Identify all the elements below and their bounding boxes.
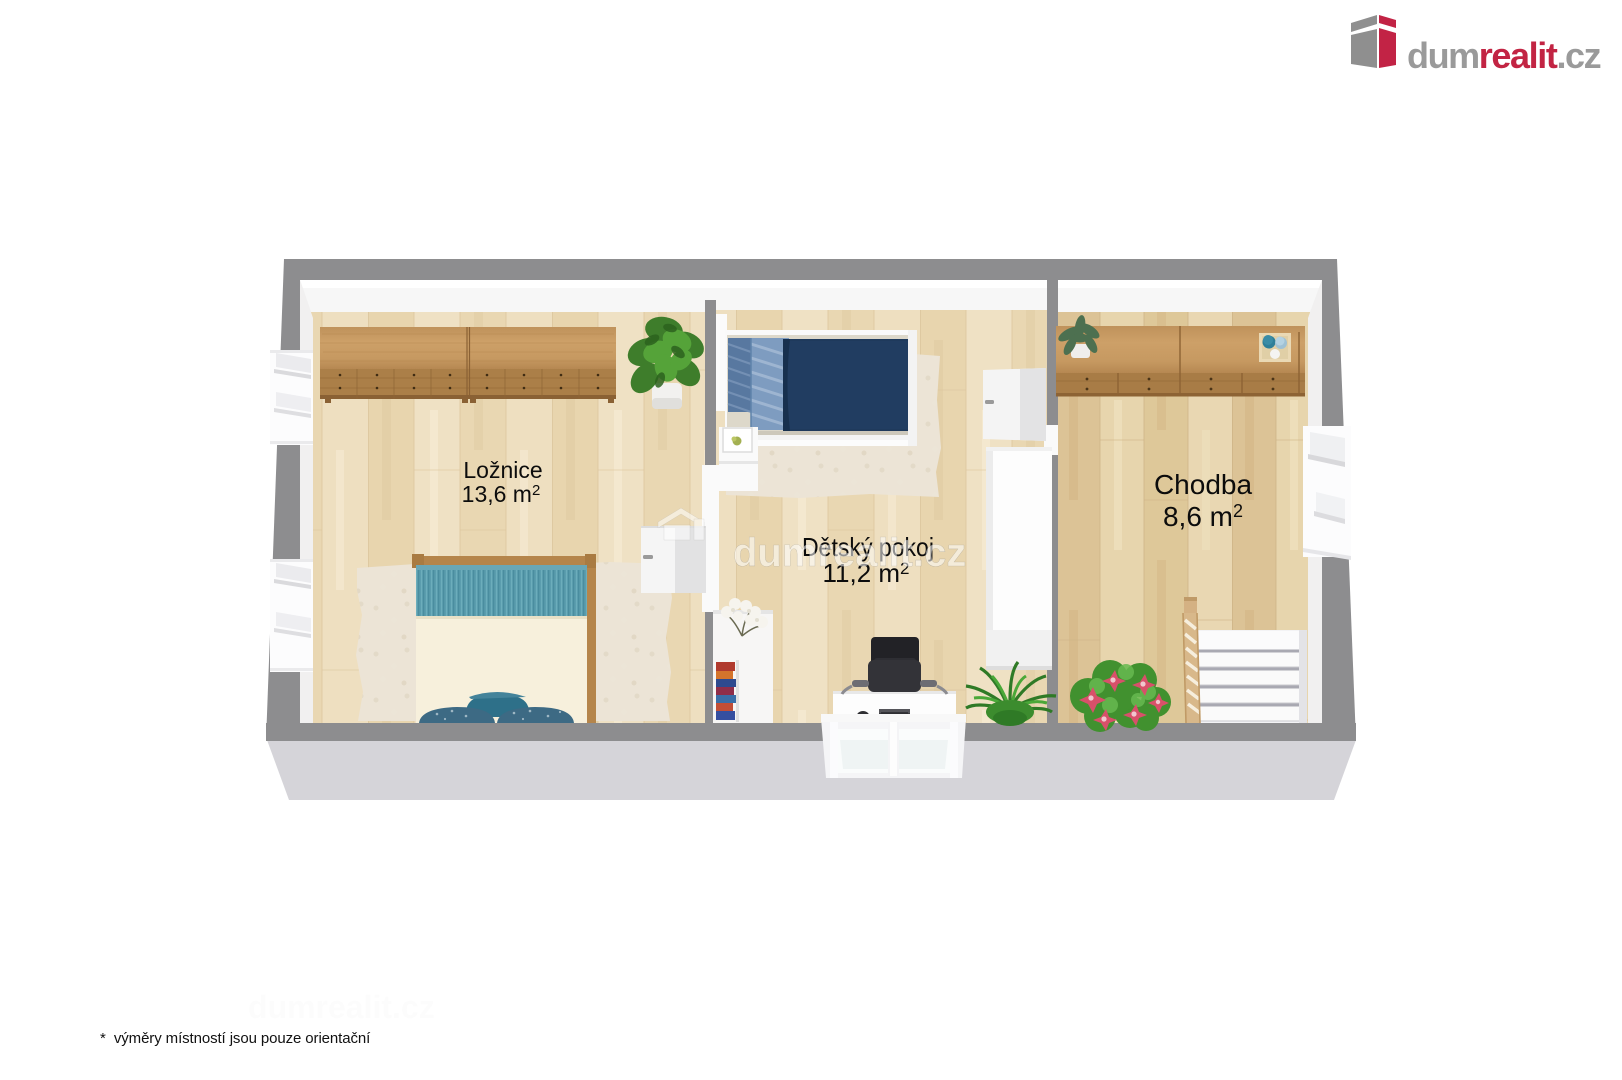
svg-text:Chodba: Chodba (1154, 469, 1253, 500)
svg-text:Ložnice: Ložnice (463, 457, 542, 483)
svg-text:dumrealit.cz: dumrealit.cz (248, 989, 435, 1025)
svg-text:dumrealit.cz: dumrealit.cz (1407, 35, 1601, 76)
svg-text:8,6 m2: 8,6 m2 (1163, 501, 1243, 532)
svg-text:13,6 m2: 13,6 m2 (462, 481, 541, 507)
svg-text:dumrealit.cz: dumrealit.cz (733, 531, 966, 575)
svg-text:* výměry místností jsou pouze: * výměry místností jsou pouze orientační (100, 1030, 371, 1047)
